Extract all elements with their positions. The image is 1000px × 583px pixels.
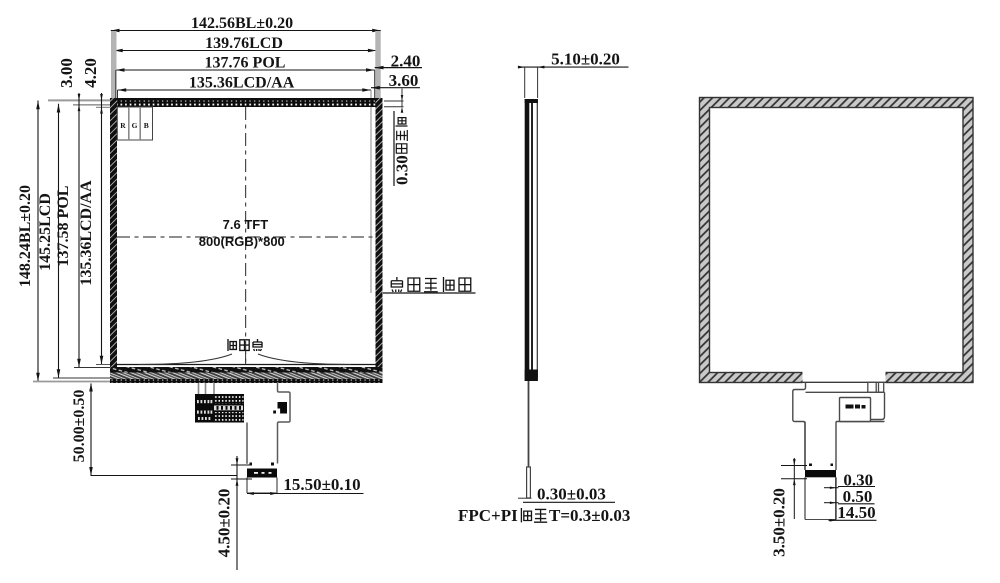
svg-text:137.76 POL: 137.76 POL — [205, 55, 286, 72]
svg-text:137.58 POL: 137.58 POL — [55, 186, 72, 267]
svg-text:0.30: 0.30 — [393, 155, 412, 185]
svg-text:4.20: 4.20 — [81, 58, 100, 88]
svg-text:135.36LCD/AA: 135.36LCD/AA — [78, 180, 95, 286]
svg-text:800(RGB)*800: 800(RGB)*800 — [199, 234, 285, 249]
svg-text:148.24BL±0.20: 148.24BL±0.20 — [17, 185, 34, 287]
svg-text:T=0.3±0.03: T=0.3±0.03 — [549, 506, 630, 525]
svg-text:3.50±0.20: 3.50±0.20 — [770, 488, 789, 557]
svg-text:15.50±0.10: 15.50±0.10 — [283, 475, 360, 494]
svg-text:7.6 TFT: 7.6 TFT — [223, 217, 269, 232]
svg-text:FPC+PI: FPC+PI — [458, 506, 518, 525]
svg-text:4.50±0.20: 4.50±0.20 — [215, 489, 234, 558]
svg-text:50.00±0.50: 50.00±0.50 — [71, 390, 88, 463]
svg-text:B: B — [144, 121, 149, 130]
svg-text:G: G — [132, 121, 138, 130]
svg-text:5.10±0.20: 5.10±0.20 — [551, 50, 620, 69]
svg-text:142.56BL±0.20: 142.56BL±0.20 — [191, 15, 293, 32]
svg-text:0.30±0.03: 0.30±0.03 — [537, 485, 606, 504]
svg-text:14.50: 14.50 — [837, 503, 875, 522]
svg-text:139.76LCD: 139.76LCD — [205, 35, 283, 52]
svg-text:135.36LCD/AA: 135.36LCD/AA — [189, 75, 295, 92]
svg-text:3.00: 3.00 — [57, 58, 76, 88]
svg-text:R: R — [120, 121, 126, 130]
svg-text:145.25LCD: 145.25LCD — [37, 193, 54, 271]
